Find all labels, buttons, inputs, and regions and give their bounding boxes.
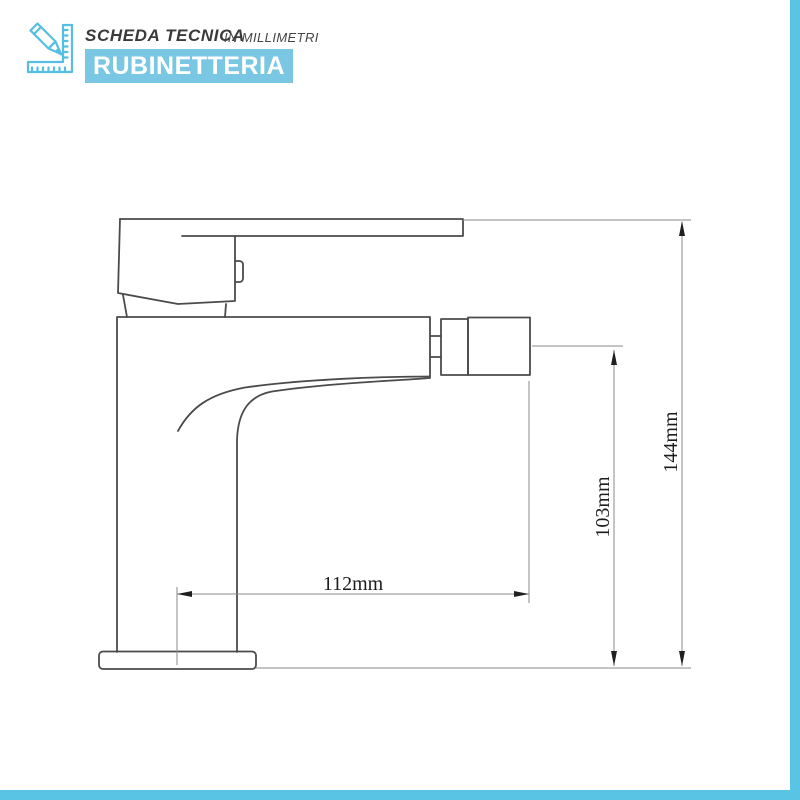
faucet-handle xyxy=(118,219,463,317)
dimension-144mm: 144mm xyxy=(256,220,691,668)
dimension-112mm: 112mm xyxy=(177,381,529,665)
accent-border-bottom xyxy=(0,790,800,800)
dimension-103mm: 103mm xyxy=(532,346,623,666)
accent-border-right xyxy=(790,0,800,800)
scheda-tecnica-page: SCHEDA TECNICA IN MILLIMETRI RUBINETTERI… xyxy=(0,0,800,800)
dimension-112mm-label: 112mm xyxy=(323,573,384,595)
dimension-103mm-label: 103mm xyxy=(592,476,614,538)
faucet-body-spout xyxy=(117,317,430,652)
faucet-aerator xyxy=(430,318,530,376)
technical-drawing: 112mm 103mm 144mm xyxy=(0,0,800,800)
dimension-144mm-label: 144mm xyxy=(660,411,682,473)
